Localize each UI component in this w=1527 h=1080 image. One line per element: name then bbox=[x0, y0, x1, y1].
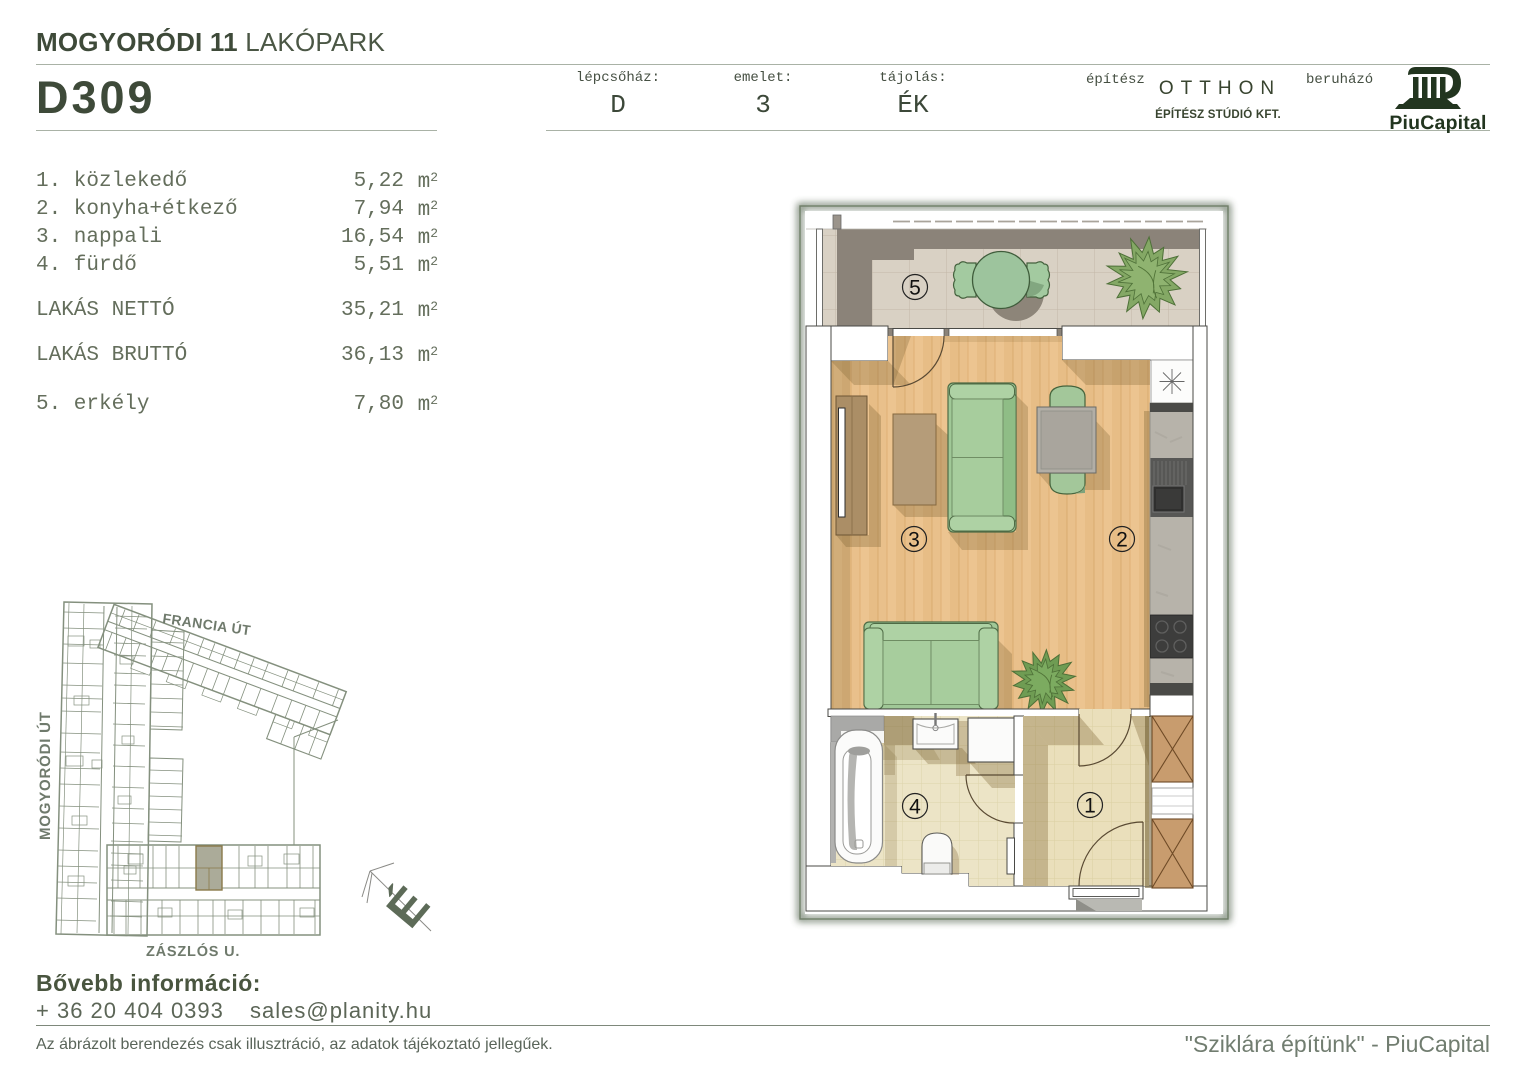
svg-text:2: 2 bbox=[1116, 529, 1128, 552]
svg-text:4: 4 bbox=[909, 796, 921, 819]
svg-text:5: 5 bbox=[909, 277, 921, 300]
svg-text:MOGYORÓDI ÚT: MOGYORÓDI ÚT bbox=[36, 711, 54, 840]
svg-text:PiuCapital: PiuCapital bbox=[1389, 112, 1486, 134]
svg-text:3: 3 bbox=[908, 529, 920, 552]
svg-text:ZÁSZLÓS U.: ZÁSZLÓS U. bbox=[146, 943, 240, 960]
svg-text:1: 1 bbox=[1084, 795, 1096, 818]
svg-text:FRANCIA ÚT: FRANCIA ÚT bbox=[162, 610, 252, 638]
